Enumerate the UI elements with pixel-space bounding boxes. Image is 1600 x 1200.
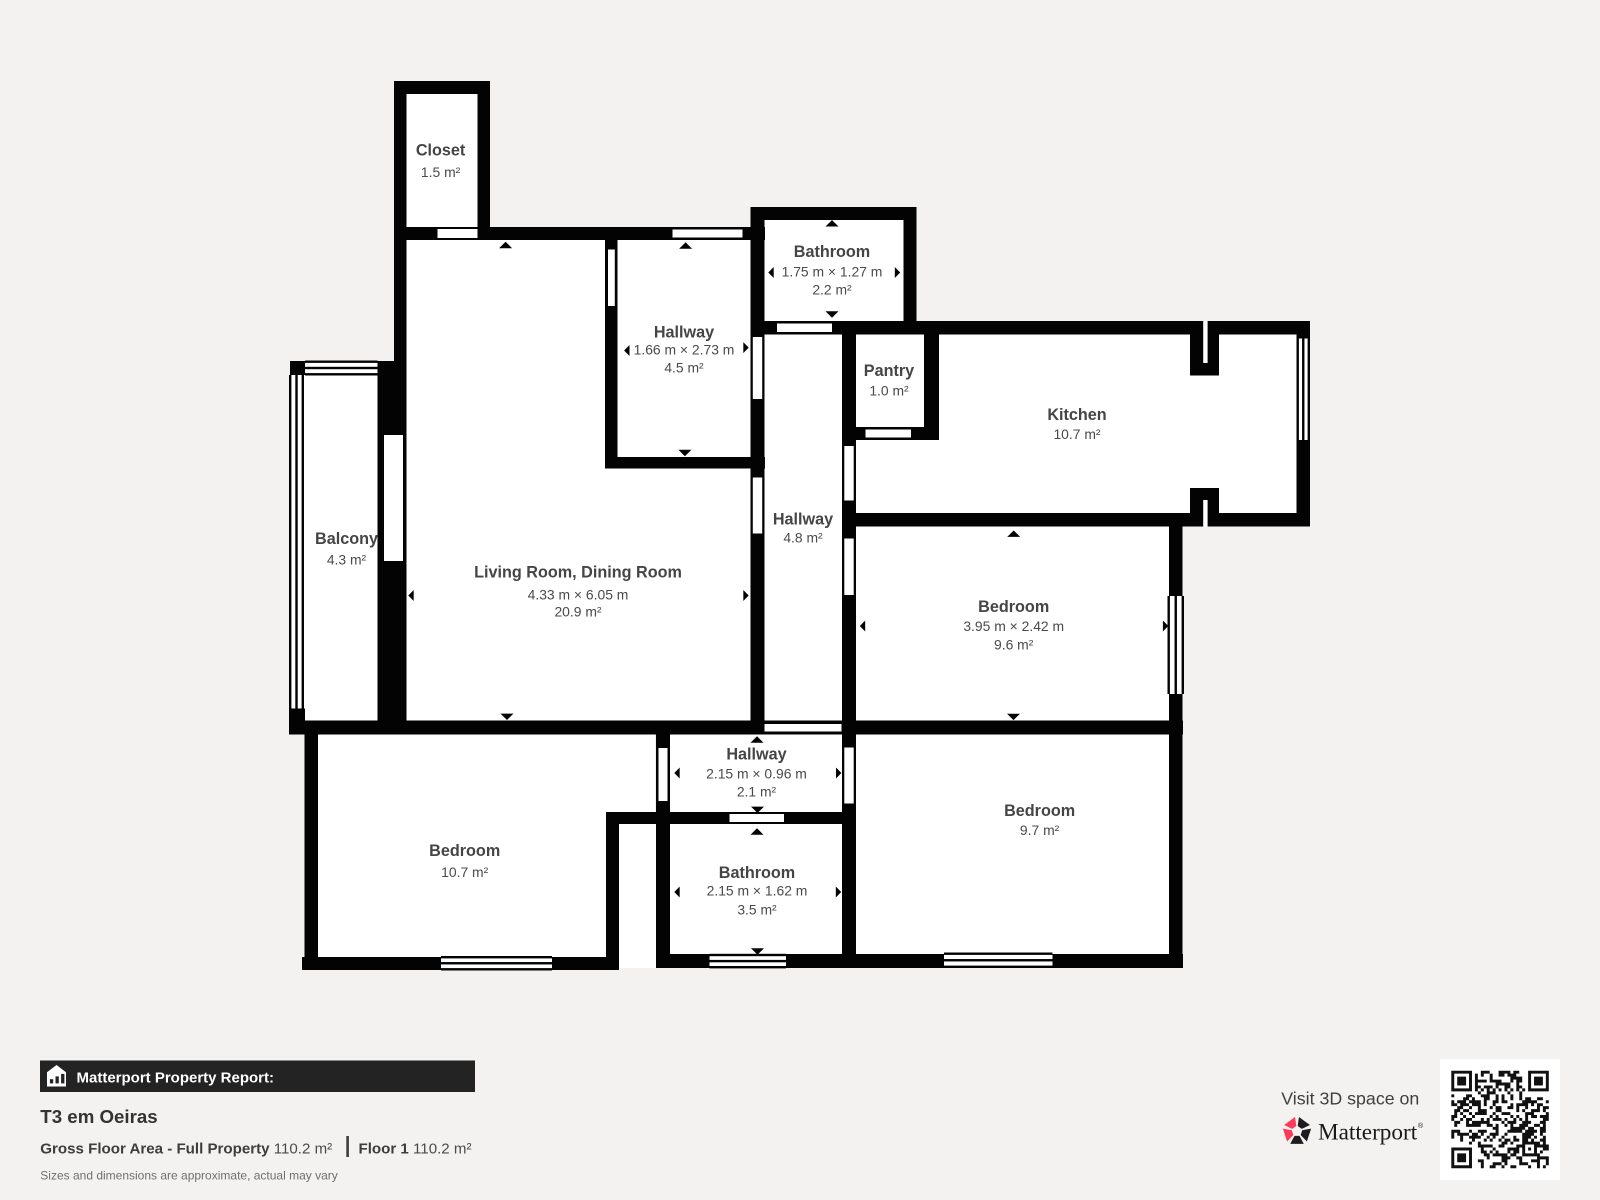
svg-text:20.9 m²: 20.9 m² <box>554 603 601 619</box>
svg-text:Bathroom: Bathroom <box>794 243 870 261</box>
svg-text:2.1 m²: 2.1 m² <box>737 783 777 799</box>
svg-text:9.6 m²: 9.6 m² <box>994 636 1034 652</box>
svg-text:1.0 m²: 1.0 m² <box>869 382 909 398</box>
svg-text:1.75 m × 1.27 m: 1.75 m × 1.27 m <box>782 263 883 279</box>
svg-text:Hallway: Hallway <box>773 510 833 528</box>
svg-text:Matterport: Matterport <box>1318 1120 1418 1146</box>
svg-text:4.33 m × 6.05 m: 4.33 m × 6.05 m <box>528 586 629 602</box>
svg-text:3.5 m²: 3.5 m² <box>737 901 777 917</box>
svg-text:10.7 m²: 10.7 m² <box>441 864 488 880</box>
svg-text:Closet: Closet <box>416 141 466 159</box>
svg-text:9.7 m²: 9.7 m² <box>1020 822 1060 838</box>
svg-text:Kitchen: Kitchen <box>1047 406 1106 424</box>
svg-text:T3 em Oeiras: T3 em Oeiras <box>40 1106 157 1127</box>
svg-text:1.5 m²: 1.5 m² <box>421 164 461 180</box>
svg-text:4.3 m²: 4.3 m² <box>327 551 367 567</box>
svg-text:4.8 m²: 4.8 m² <box>783 529 823 545</box>
svg-text:2.15 m × 1.62 m: 2.15 m × 1.62 m <box>707 882 808 898</box>
svg-text:Living Room, Dining Room: Living Room, Dining Room <box>474 563 682 581</box>
svg-text:4.5 m²: 4.5 m² <box>664 359 704 375</box>
svg-text:2.2 m²: 2.2 m² <box>812 281 852 297</box>
svg-text:Floor 1 110.2 m²: Floor 1 110.2 m² <box>359 1141 472 1158</box>
svg-text:Gross Floor Area - Full Proper: Gross Floor Area - Full Property 110.2 m… <box>40 1141 332 1158</box>
svg-text:Bedroom: Bedroom <box>978 598 1049 616</box>
svg-text:Hallway: Hallway <box>726 745 786 763</box>
svg-text:Balcony: Balcony <box>315 530 378 548</box>
svg-text:2.15 m × 0.96 m: 2.15 m × 0.96 m <box>706 765 807 781</box>
svg-text:1.66 m × 2.73 m: 1.66 m × 2.73 m <box>634 341 735 357</box>
svg-text:®: ® <box>1418 1122 1424 1130</box>
svg-text:3.95 m × 2.42 m: 3.95 m × 2.42 m <box>963 618 1064 634</box>
svg-text:Bedroom: Bedroom <box>1004 802 1075 820</box>
svg-text:Sizes and dimensions are appro: Sizes and dimensions are approximate, ac… <box>40 1169 337 1183</box>
svg-text:Matterport Property Report:: Matterport Property Report: <box>77 1069 275 1086</box>
svg-text:Pantry: Pantry <box>864 362 914 380</box>
svg-text:10.7 m²: 10.7 m² <box>1053 426 1100 442</box>
svg-text:Hallway: Hallway <box>654 323 714 341</box>
svg-text:Bathroom: Bathroom <box>719 864 795 882</box>
svg-text:Visit 3D space on: Visit 3D space on <box>1281 1088 1419 1108</box>
svg-text:Bedroom: Bedroom <box>429 842 500 860</box>
